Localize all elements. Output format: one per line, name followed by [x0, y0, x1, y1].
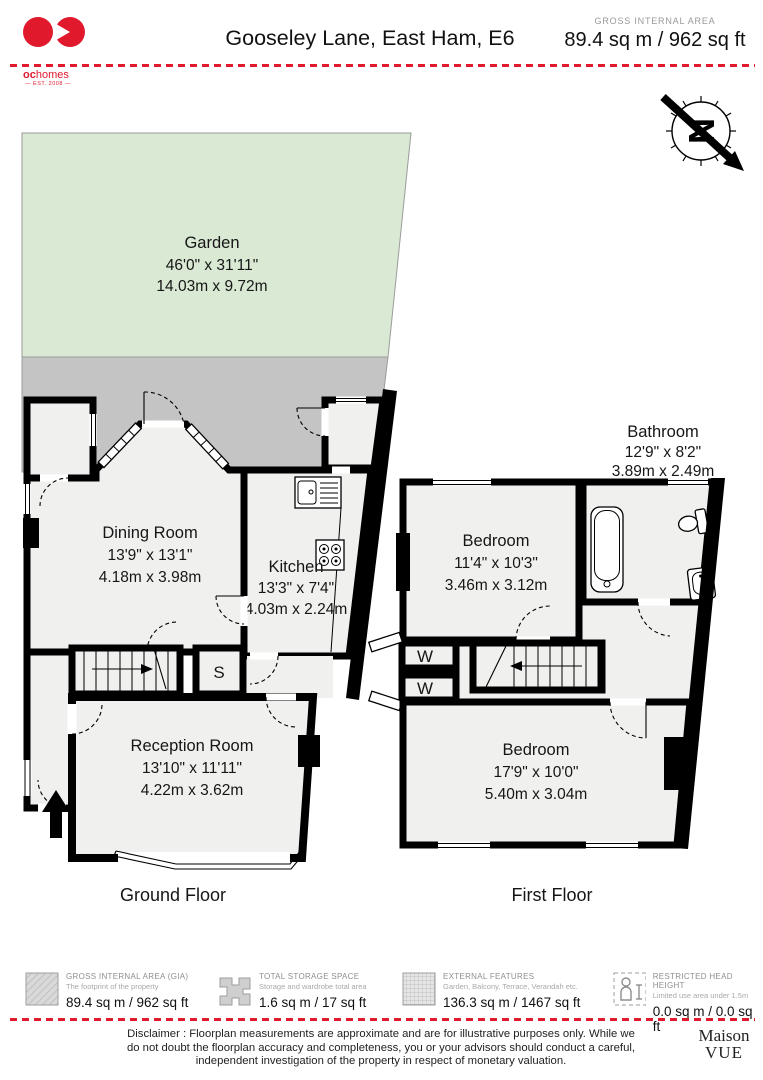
legend-gia-title: GROSS INTERNAL AREA (GIA) [66, 972, 188, 981]
gia-icon [25, 972, 59, 1006]
external-features-icon [402, 972, 436, 1006]
storage-letter: S [213, 663, 224, 682]
floorplan-page: ochomes — EST. 2008 — Gooseley Lane, Eas… [0, 0, 763, 1080]
restricted-height-icon [613, 972, 646, 1006]
bedroom1-chimney [396, 533, 410, 591]
room-reception [72, 697, 313, 858]
bedroom1-imperial: 11'4" x 10'3" [454, 555, 538, 572]
bedroom2-door-gap [610, 699, 646, 706]
bedroom1-name: Bedroom [463, 532, 530, 550]
rear-corridor [247, 656, 333, 698]
wc-door-gap [40, 475, 68, 482]
disclaimer-text: Disclaimer : Floorplan measurements are … [120, 1028, 642, 1069]
room-wc [27, 400, 93, 478]
floorplan-drawing: N Garden 46'0" x 31'11" 14.03m x 9.72m [0, 0, 763, 960]
compass: N [663, 96, 744, 171]
garden-imperial: 46'0" x 31'11" [166, 257, 258, 274]
legend-storage-value: 1.6 sq m / 17 sq ft [259, 995, 367, 1010]
legend-external-subtitle: Garden, Balcony, Terrace, Verandah etc. [443, 982, 580, 991]
legend-restricted: RESTRICTED HEAD HEIGHT Limited use area … [613, 972, 763, 1034]
reception-name: Reception Room [131, 737, 254, 755]
reception-imperial: 13'10" x 11'11" [142, 760, 242, 777]
kitchen-imperial: 13'3" x 7'4" [258, 580, 334, 597]
wardrobe-letter-2: W [417, 679, 433, 698]
dining-imperial: 13'9" x 13'1" [107, 547, 192, 564]
legend-gia-value: 89.4 sq m / 962 sq ft [66, 995, 188, 1010]
footer-divider [10, 1018, 755, 1021]
kitchen-corridor-door-gap [250, 653, 278, 660]
legend-gia-subtitle: The footprint of the property [66, 982, 188, 991]
legend-storage-title: TOTAL STORAGE SPACE [259, 972, 367, 981]
legend-restricted-title: RESTRICTED HEAD HEIGHT [653, 972, 763, 990]
maison-vue-logo: Maison VUE [694, 1027, 754, 1061]
reception-metric: 4.22m x 3.62m [141, 782, 244, 799]
kitchen-sink [295, 477, 341, 508]
dining-kitchen-door-gap [241, 596, 248, 626]
kitchen-metric: 4.03m x 2.24m [245, 601, 348, 618]
garden-metric: 14.03m x 9.72m [156, 278, 267, 295]
bedroom2-imperial: 17'9" x 10'0" [493, 764, 578, 781]
reception-hall-door-gap [68, 704, 77, 734]
maison-vue-bottom: VUE [694, 1044, 754, 1061]
room-hall [27, 652, 72, 808]
legend-external: EXTERNAL FEATURES Garden, Balcony, Terra… [402, 972, 580, 1010]
compass-north-letter: N [681, 118, 722, 144]
bathroom-name: Bathroom [627, 423, 699, 441]
ground-floor-stairs [72, 648, 180, 694]
bathroom-door-gap [638, 599, 670, 606]
reception-corridor-door-gap [266, 694, 296, 701]
lobby-window [336, 397, 366, 404]
first-floor-stairs [450, 643, 602, 690]
bathroom-imperial: 12'9" x 8'2" [625, 444, 701, 461]
dining-name: Dining Room [102, 524, 197, 542]
bedroom2-metric: 5.40m x 3.04m [485, 786, 588, 803]
lobby-door-gap [322, 408, 329, 436]
bathtub [591, 507, 623, 592]
ground-floor-label: Ground Floor [120, 885, 226, 905]
reception-wall-notch [298, 735, 320, 767]
bedroom1-metric: 3.46m x 3.12m [445, 577, 548, 594]
storage-icon [218, 972, 252, 1006]
garden-door-gap [142, 421, 184, 428]
legend-restricted-subtitle: Limited use area under 1.5m [653, 991, 763, 1000]
bathroom-metric: 3.89m x 2.49m [612, 463, 715, 480]
dining-metric: 4.18m x 3.98m [99, 569, 202, 586]
kitchen-name: Kitchen [268, 558, 323, 576]
legend-storage: TOTAL STORAGE SPACE Storage and wardrobe… [218, 972, 367, 1010]
kitchen-lobby-door-gap [332, 467, 350, 474]
garden-name: Garden [184, 234, 239, 252]
legend-storage-subtitle: Storage and wardrobe total area [259, 982, 367, 991]
legend-external-value: 136.3 sq m / 1467 sq ft [443, 995, 580, 1010]
ground-floor-plan: Garden 46'0" x 31'11" 14.03m x 9.72m [22, 133, 411, 905]
dining-chimney [23, 518, 39, 548]
first-floor-plan: Bathroom 12'9" x 8'2" 3.89m x 2.49m Bedr… [369, 423, 725, 905]
maison-vue-top: Maison [694, 1027, 754, 1044]
first-floor-label: First Floor [512, 885, 593, 905]
room-rear-lobby [325, 400, 383, 468]
legend-external-title: EXTERNAL FEATURES [443, 972, 580, 981]
bedroom2-name: Bedroom [503, 741, 570, 759]
wardrobe-letter-1: W [417, 647, 433, 666]
legend-gia: GROSS INTERNAL AREA (GIA) The footprint … [25, 972, 188, 1010]
